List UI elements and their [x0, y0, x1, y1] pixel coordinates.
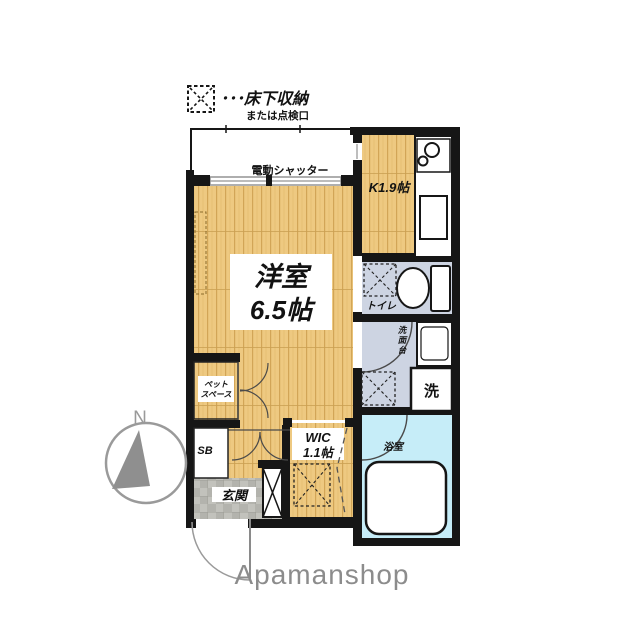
toilet-label: トイレ: [366, 300, 397, 312]
legend-sublabel: または点検口: [246, 109, 309, 122]
underfloor-storage-icon: [188, 86, 214, 112]
kitchen-sink-icon: [420, 196, 447, 239]
legend: ･･･床下収納 または点検口: [188, 86, 310, 122]
compass-north-icon: N: [106, 408, 186, 503]
svg-text:洗: 洗: [398, 325, 408, 335]
compass-n-label: N: [133, 408, 147, 429]
svg-text:台: 台: [398, 345, 407, 355]
main-room-size: 6.5帖: [250, 295, 316, 325]
washing-machine-icon: 洗: [411, 368, 452, 411]
legend-label: ･･･床下収納: [220, 90, 310, 108]
entrance-label: 玄関: [221, 488, 249, 503]
main-room-name: 洋室: [254, 262, 312, 292]
shoebox: SB: [194, 428, 228, 478]
brand-logo-text: Apamanshop: [234, 559, 409, 590]
wic-name: WIC: [305, 430, 331, 445]
washer-label: 洗: [424, 382, 439, 400]
floorplan-page: ･･･床下収納 または点検口 電動シャッター: [0, 0, 640, 640]
floorplan-image: ･･･床下収納 または点検口 電動シャッター: [0, 0, 640, 640]
washbasin-icon: [417, 322, 452, 366]
bathtub-icon: [366, 462, 446, 534]
shoebox-label: SB: [197, 445, 212, 457]
stove-burners-icon: [417, 139, 450, 172]
balcony-window: [194, 175, 355, 186]
petspace-label-2: スペース: [200, 390, 231, 399]
svg-text:面: 面: [398, 335, 408, 345]
wic-size: 1.1帖: [303, 446, 335, 460]
bathroom-label: 浴室: [383, 441, 405, 453]
shutter-label: 電動シャッター: [252, 163, 329, 177]
toilet-icon: [397, 266, 450, 311]
petspace-label-1: ペット: [204, 380, 228, 389]
washbasin-label: 洗 面 台: [398, 325, 408, 355]
shaft-crosshatch-box: [263, 468, 282, 517]
kitchen-label: K1.9帖: [369, 180, 411, 195]
